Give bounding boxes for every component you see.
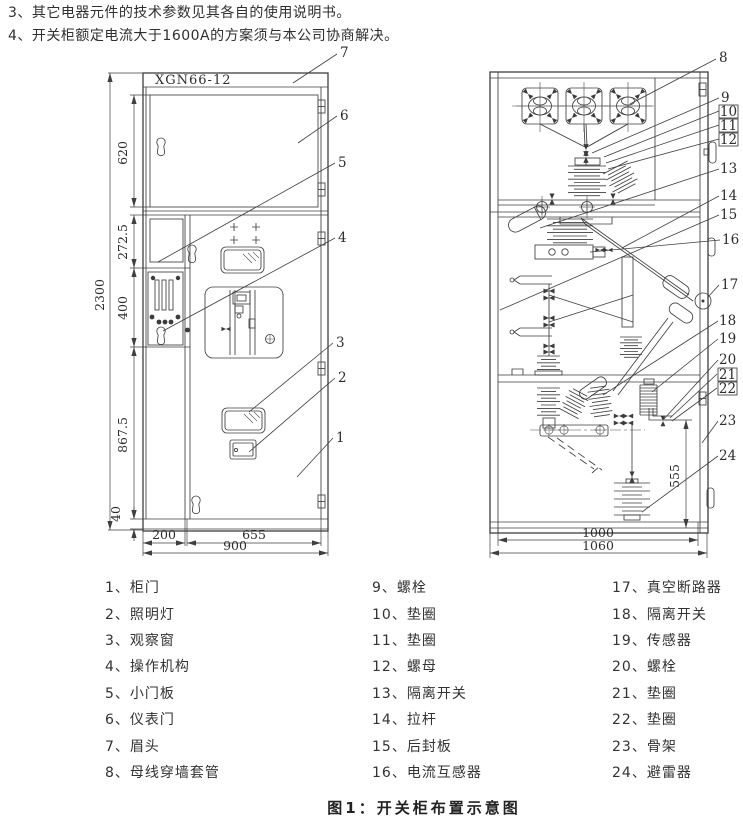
callout-19: 19 [719, 331, 736, 347]
callout-22: 22 [719, 381, 736, 397]
legend-item: 12、螺母 [372, 653, 482, 679]
legend-item: 10、垫圈 [372, 600, 482, 626]
callout-20: 20 [719, 352, 736, 368]
callout-2: 2 [338, 370, 347, 386]
callout-3: 3 [336, 335, 345, 351]
callout-6: 6 [340, 108, 349, 124]
callout-16: 16 [722, 232, 739, 248]
front-view-callouts: 7 6 5 4 3 2 1 [158, 45, 349, 477]
legend-column-3: 17、真空断路器 18、隔离开关 19、传感器 20、螺栓 21、垫圈 22、垫… [612, 574, 722, 785]
callout-15: 15 [720, 207, 737, 223]
legend-item: 2、照明灯 [105, 600, 220, 626]
figure-caption: 图1：开关柜布置示意图 [0, 797, 743, 818]
legend-item: 16、电流互感器 [372, 759, 482, 785]
legend-item: 21、垫圈 [612, 680, 722, 706]
side-view-callouts: 8 9 10 11 12 13 14 15 16 17 18 19 20 21 … [500, 50, 739, 512]
switchgear-layout-drawing: XGN66-12 [0, 0, 743, 570]
legend-item: 14、拉杆 [372, 706, 482, 732]
dim-base-height: 40 [108, 506, 123, 522]
manual-page: 3、其它电器元件的技术参数见其各自的使用说明书。 4、开关柜额定电流大于1600… [0, 0, 743, 823]
callout-24: 24 [719, 448, 736, 464]
legend-item: 24、避雷器 [612, 759, 722, 785]
legend-item: 11、垫圈 [372, 627, 482, 653]
legend-item: 3、观察窗 [105, 627, 220, 653]
legend-item: 7、眉头 [105, 732, 220, 758]
legend-item: 1、柜门 [105, 574, 220, 600]
dim-upper-section: 272.5 [115, 224, 130, 260]
callout-17: 17 [721, 277, 738, 293]
side-view-drawing: 555 1000 1060 [490, 50, 739, 558]
legend-column-1: 1、柜门 2、照明灯 3、观察窗 4、操作机构 5、小门板 6、仪表门 7、眉头… [105, 574, 220, 785]
legend-item: 19、传感器 [612, 627, 722, 653]
side-view-dimensions: 555 1000 1060 [490, 420, 707, 558]
callout-1: 1 [336, 430, 345, 446]
legend-item: 5、小门板 [105, 680, 220, 706]
dim-overall-depth: 1060 [582, 538, 614, 553]
dim-overall-height: 2300 [92, 279, 107, 311]
legend-item: 4、操作机构 [105, 653, 220, 679]
legend-item: 9、螺栓 [372, 574, 482, 600]
callout-14: 14 [720, 188, 737, 204]
dim-mech-section: 400 [115, 296, 130, 320]
front-view-drawing: XGN66-12 [92, 45, 349, 556]
legend-item: 15、后封板 [372, 732, 482, 758]
legend-item: 18、隔离开关 [612, 600, 722, 626]
dim-lower-door: 867.5 [115, 417, 130, 453]
model-label: XGN66-12 [155, 73, 232, 88]
legend-item: 13、隔离开关 [372, 680, 482, 706]
callout-18: 18 [719, 313, 736, 329]
dim-overall-width: 900 [223, 538, 247, 553]
legend-item: 17、真空断路器 [612, 574, 722, 600]
legend-item: 20、螺栓 [612, 653, 722, 679]
callout-4: 4 [338, 230, 347, 246]
dim-left-width: 200 [152, 527, 176, 542]
callout-8: 8 [719, 50, 728, 66]
callout-23: 23 [719, 413, 736, 429]
legend-item: 22、垫圈 [612, 706, 722, 732]
dim-meter-door: 620 [115, 141, 130, 165]
callout-13: 13 [720, 161, 737, 177]
callout-12: 12 [720, 132, 737, 148]
legend-column-2: 9、螺栓 10、垫圈 11、垫圈 12、螺母 13、隔离开关 14、拉杆 15、… [372, 574, 482, 785]
legend-item: 23、骨架 [612, 732, 722, 758]
callout-5: 5 [338, 155, 347, 171]
front-view-dimensions: 2300 620 272.5 400 867.5 40 200 [92, 73, 328, 556]
callout-7: 7 [340, 45, 349, 61]
legend-item: 8、母线穿墙套管 [105, 759, 220, 785]
legend-item: 6、仪表门 [105, 706, 220, 732]
